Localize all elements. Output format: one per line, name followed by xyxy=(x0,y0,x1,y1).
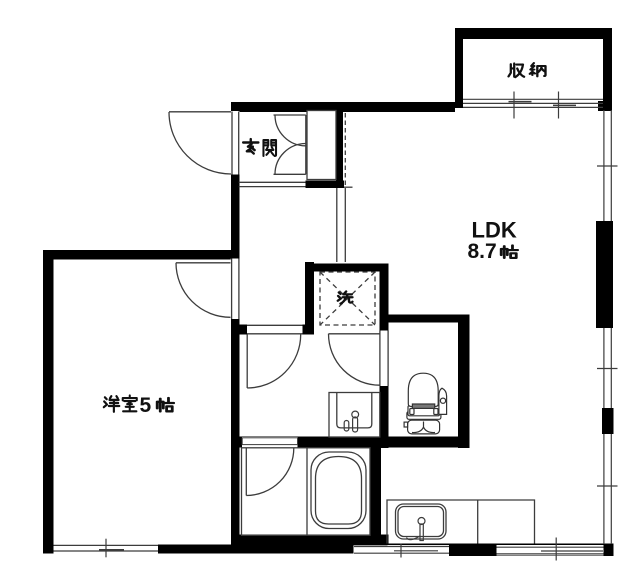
svg-text:8.7: 8.7 xyxy=(468,240,497,263)
svg-text:5: 5 xyxy=(140,394,152,417)
svg-text:LDK: LDK xyxy=(472,218,517,243)
